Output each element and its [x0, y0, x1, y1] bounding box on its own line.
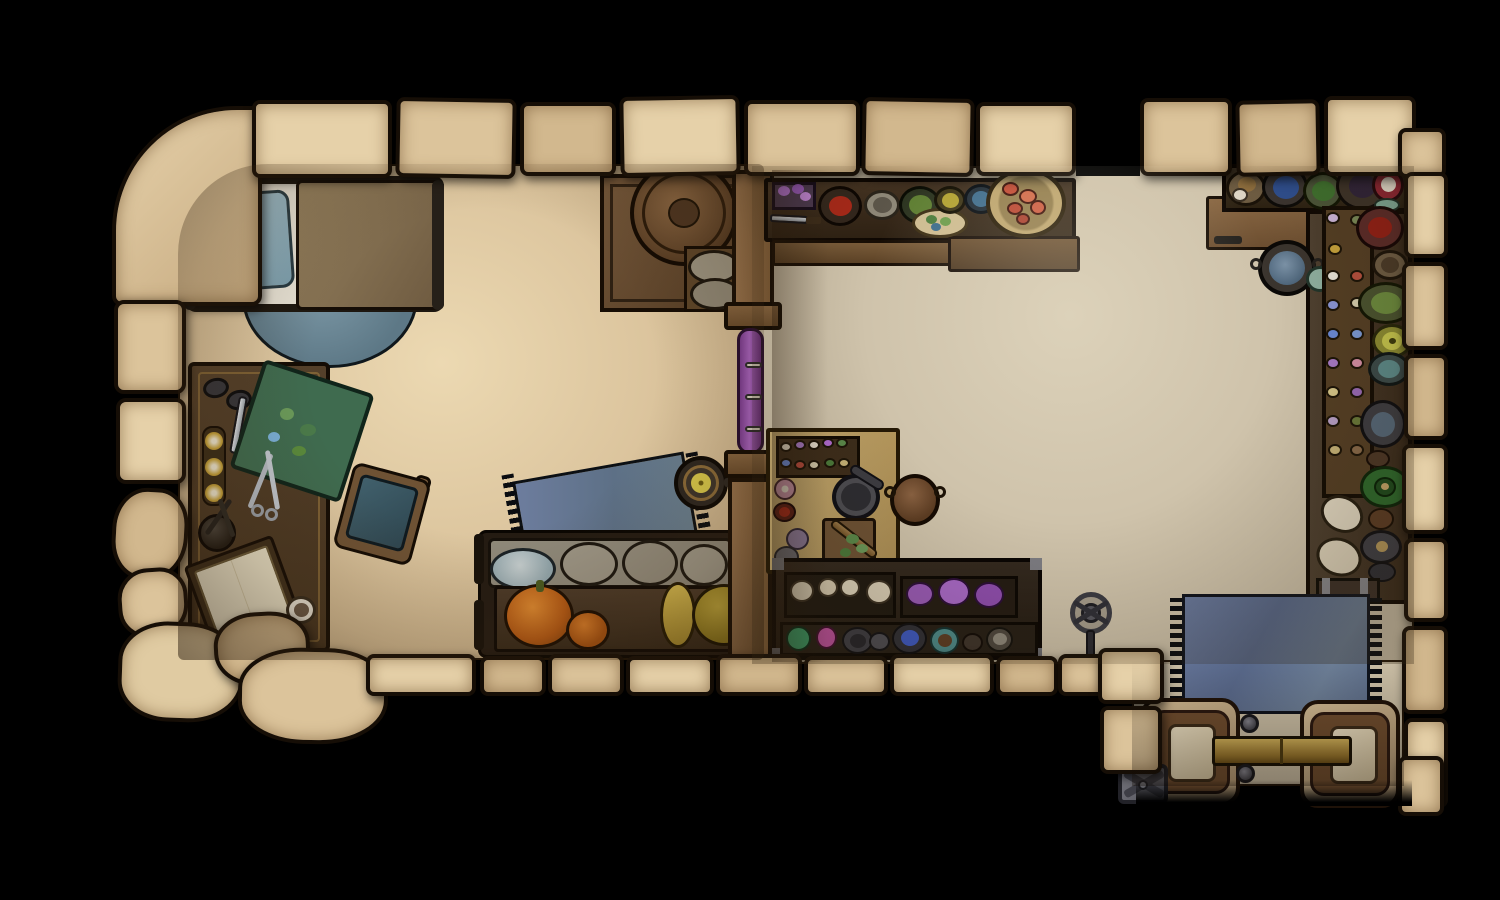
- layer-lighting: [0, 0, 1500, 900]
- vignette-west-shade: [178, 164, 764, 660]
- map-stage: [0, 0, 1500, 900]
- shadow-vestibule-grad: [1132, 660, 1404, 786]
- fade-south: [1136, 780, 1412, 806]
- shadow-divider-grad: [772, 170, 828, 662]
- shadow-divider: [0, 0, 1500, 900]
- glow-east: [0, 0, 1500, 900]
- shadow-vestibule: [0, 0, 1500, 900]
- vignette-west: [0, 0, 1500, 900]
- glow-east-light: [752, 166, 1414, 664]
